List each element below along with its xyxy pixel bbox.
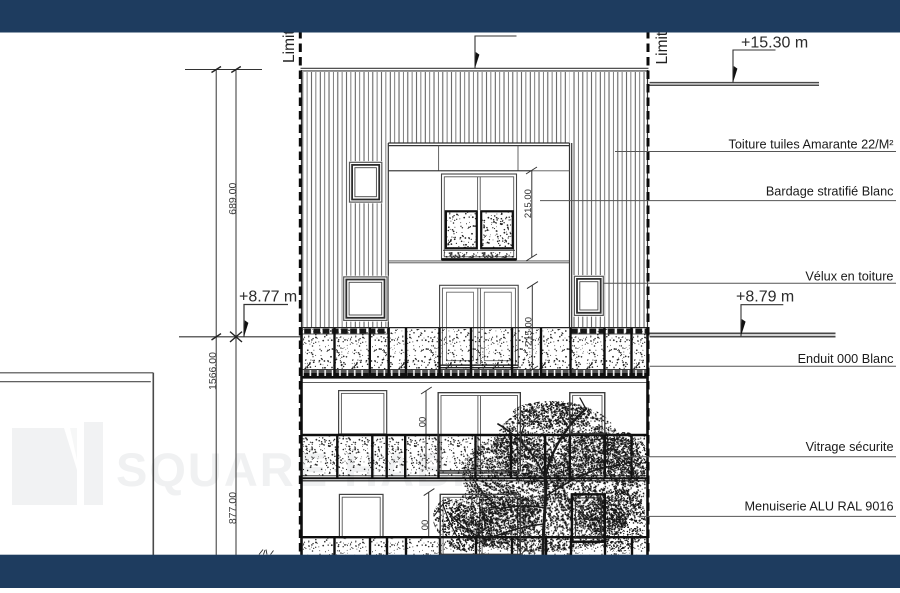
svg-text:Vélux en toiture: Vélux en toiture	[805, 270, 893, 284]
svg-text:00: 00	[417, 417, 428, 428]
svg-text:689.00: 689.00	[227, 182, 239, 214]
svg-text:+8.79 m: +8.79 m	[736, 289, 794, 306]
svg-text:877.00: 877.00	[227, 492, 239, 524]
svg-text:215.00: 215.00	[524, 317, 535, 346]
svg-text:Enduit 000 Blanc: Enduit 000 Blanc	[798, 352, 895, 366]
svg-text:Vitrage sécurite: Vitrage sécurite	[806, 440, 894, 454]
svg-text:Toiture tuiles Amarante 22/M²: Toiture tuiles Amarante 22/M²	[728, 138, 893, 152]
svg-text:215.00: 215.00	[523, 189, 534, 218]
svg-text:1566.00: 1566.00	[207, 352, 219, 390]
svg-text:Bardage stratifié Blanc: Bardage stratifié Blanc	[766, 185, 894, 199]
svg-text:+15.30 m: +15.30 m	[741, 35, 808, 52]
svg-text:Menuiserie ALU RAL 9016: Menuiserie ALU RAL 9016	[744, 500, 893, 514]
svg-text:00: 00	[420, 520, 431, 531]
svg-text:+8.77 m: +8.77 m	[239, 289, 297, 306]
